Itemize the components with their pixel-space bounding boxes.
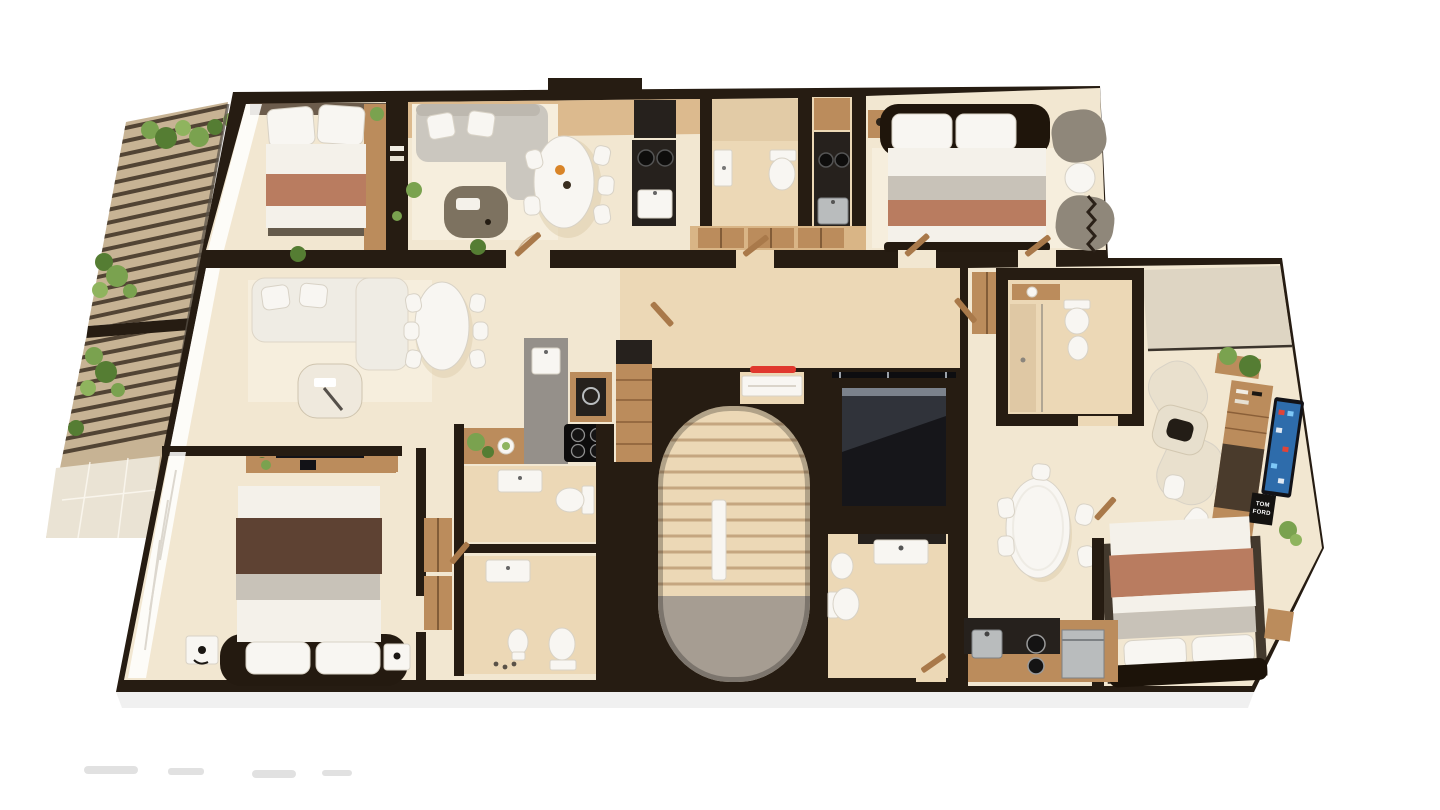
tall-wood-cabinet: [616, 340, 652, 464]
wall-sink: [874, 540, 928, 564]
wall-living-bedroom: [162, 446, 402, 456]
double-bed: [220, 486, 408, 686]
plant: [370, 107, 384, 121]
cooktop-ring: [638, 150, 654, 166]
elevator-rails: [832, 372, 956, 378]
bedroom-bottom-right: [1099, 516, 1267, 688]
nightstand-right: [1264, 608, 1294, 641]
floorplan-render: TOM FORD: [0, 0, 1440, 810]
door-opening: [1078, 416, 1118, 426]
plant-floor: [290, 246, 306, 262]
plant: [406, 182, 422, 198]
ground-shadow-dashes: [84, 766, 352, 778]
toilet: [828, 588, 859, 620]
bidet: [1068, 336, 1088, 360]
sink: [498, 470, 542, 492]
tall-fridge-unit: [634, 100, 676, 138]
parapet-notch: [548, 78, 642, 90]
poster-tom-ford: TOM FORD: [1248, 492, 1276, 525]
toilet: [1064, 300, 1090, 334]
kitchen-right: [964, 618, 1118, 682]
cooktop-ring-2: [1028, 658, 1044, 674]
red-handrail: [750, 366, 796, 373]
cooktop-ring-2: [657, 150, 673, 166]
silver-appliance: [1062, 630, 1104, 678]
side-table: [1065, 163, 1095, 193]
plant-2: [1239, 355, 1261, 377]
plant: [467, 433, 485, 451]
oven-column: [570, 372, 612, 422]
cooktop-ring: [1027, 635, 1045, 653]
upper-cabinet: [814, 98, 850, 130]
bookshelf-partition: [386, 100, 408, 250]
door-opening: [916, 670, 946, 682]
tv-console-bedroom: [246, 458, 396, 473]
plant-2: [470, 239, 486, 255]
bathroom-right: [996, 268, 1144, 426]
coffee-table: [444, 186, 508, 238]
shower-zone: [712, 99, 798, 141]
plant: [1219, 347, 1237, 365]
toilet: [769, 150, 796, 190]
nightstand-right: [384, 644, 410, 670]
cooktop-ring-2: [835, 153, 849, 167]
toilet: [556, 486, 594, 514]
nightstand-left: [186, 636, 218, 664]
tile-paving: [46, 456, 160, 538]
glazed-balcony-strip: [1142, 266, 1292, 350]
bathroom-middle-lower: [464, 556, 596, 674]
core-block: [612, 366, 960, 690]
fruit-bowl: [555, 165, 565, 175]
elevator: [832, 372, 956, 506]
cooktop-ring: [819, 153, 833, 167]
building-shadow: [116, 692, 1254, 708]
unit-right: TOM FORD: [964, 264, 1322, 688]
sink: [486, 560, 530, 582]
coffee-table: [298, 364, 362, 418]
bedroom-top-right: [866, 88, 1117, 254]
hallway-floor: [620, 268, 960, 368]
wood-shelf-column: [364, 104, 388, 250]
stair-white-rail: [712, 500, 726, 580]
bathroom-core: [828, 534, 948, 682]
hall-top: [690, 226, 870, 250]
bidet: [831, 553, 853, 579]
toilet: [549, 628, 576, 670]
double-bed: [880, 104, 1050, 252]
double-bed: [1101, 516, 1267, 688]
kitchen-top-left: [632, 100, 676, 226]
wall-hall-partition-2: [416, 632, 426, 680]
